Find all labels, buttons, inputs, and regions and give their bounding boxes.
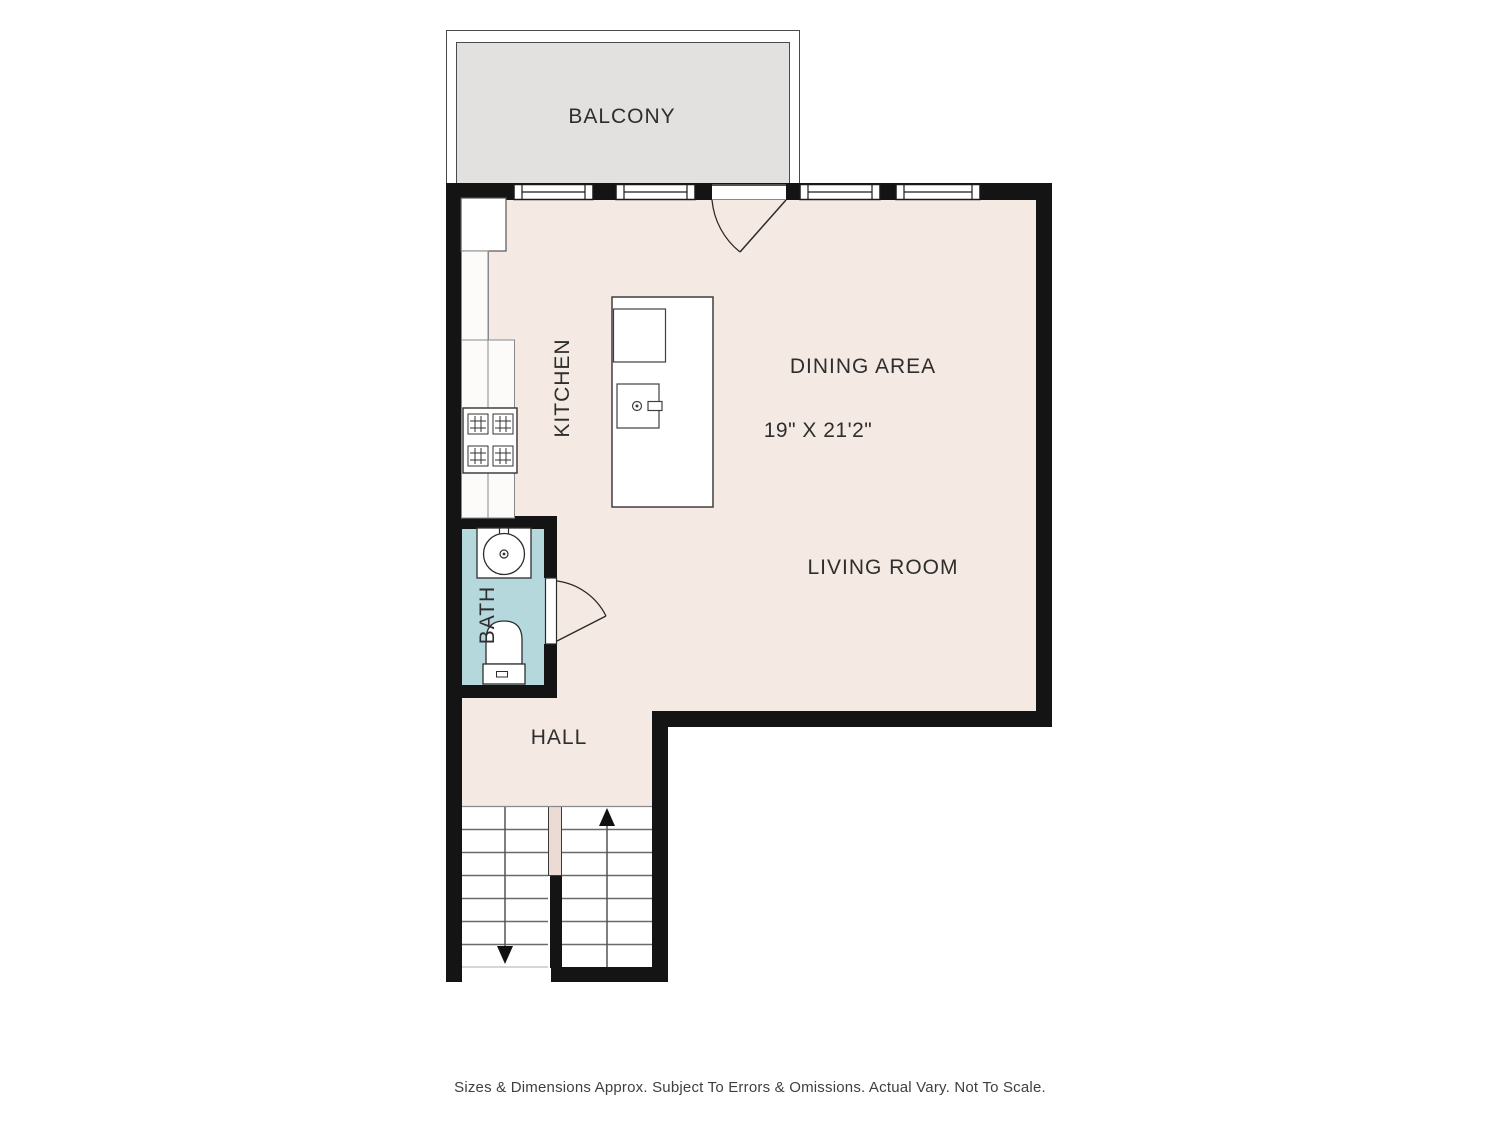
living-room-label: LIVING ROOM: [807, 556, 958, 580]
staircase: [462, 807, 652, 968]
bath-sink-icon: [477, 528, 531, 578]
dining-area-dimensions: 19" X 21'2": [764, 419, 873, 443]
bath-door-icon: [546, 578, 607, 644]
stove-icon: [463, 408, 517, 473]
window-icon: [896, 185, 980, 200]
stairs-up-arrow-icon: [599, 808, 615, 826]
window-icon: [616, 185, 695, 200]
dining-area-label: DINING AREA: [790, 355, 936, 379]
balcony-label: BALCONY: [568, 105, 675, 129]
balcony-door-icon: [712, 184, 786, 252]
kitchen-island: [612, 297, 713, 507]
kitchen-label: KITCHEN: [551, 338, 575, 437]
island-sink-icon: [617, 384, 662, 428]
bath-label: BATH: [476, 586, 500, 644]
window-icon: [800, 185, 880, 200]
plan-linework: [0, 0, 1500, 1125]
window-icon: [514, 185, 593, 200]
stairs-down-arrow-icon: [497, 946, 513, 964]
floor-plan: BALCONY KITCHEN DINING AREA 19" X 21'2" …: [0, 0, 1500, 1125]
disclaimer-text: Sizes & Dimensions Approx. Subject To Er…: [0, 1079, 1500, 1096]
hall-label: HALL: [531, 726, 588, 750]
